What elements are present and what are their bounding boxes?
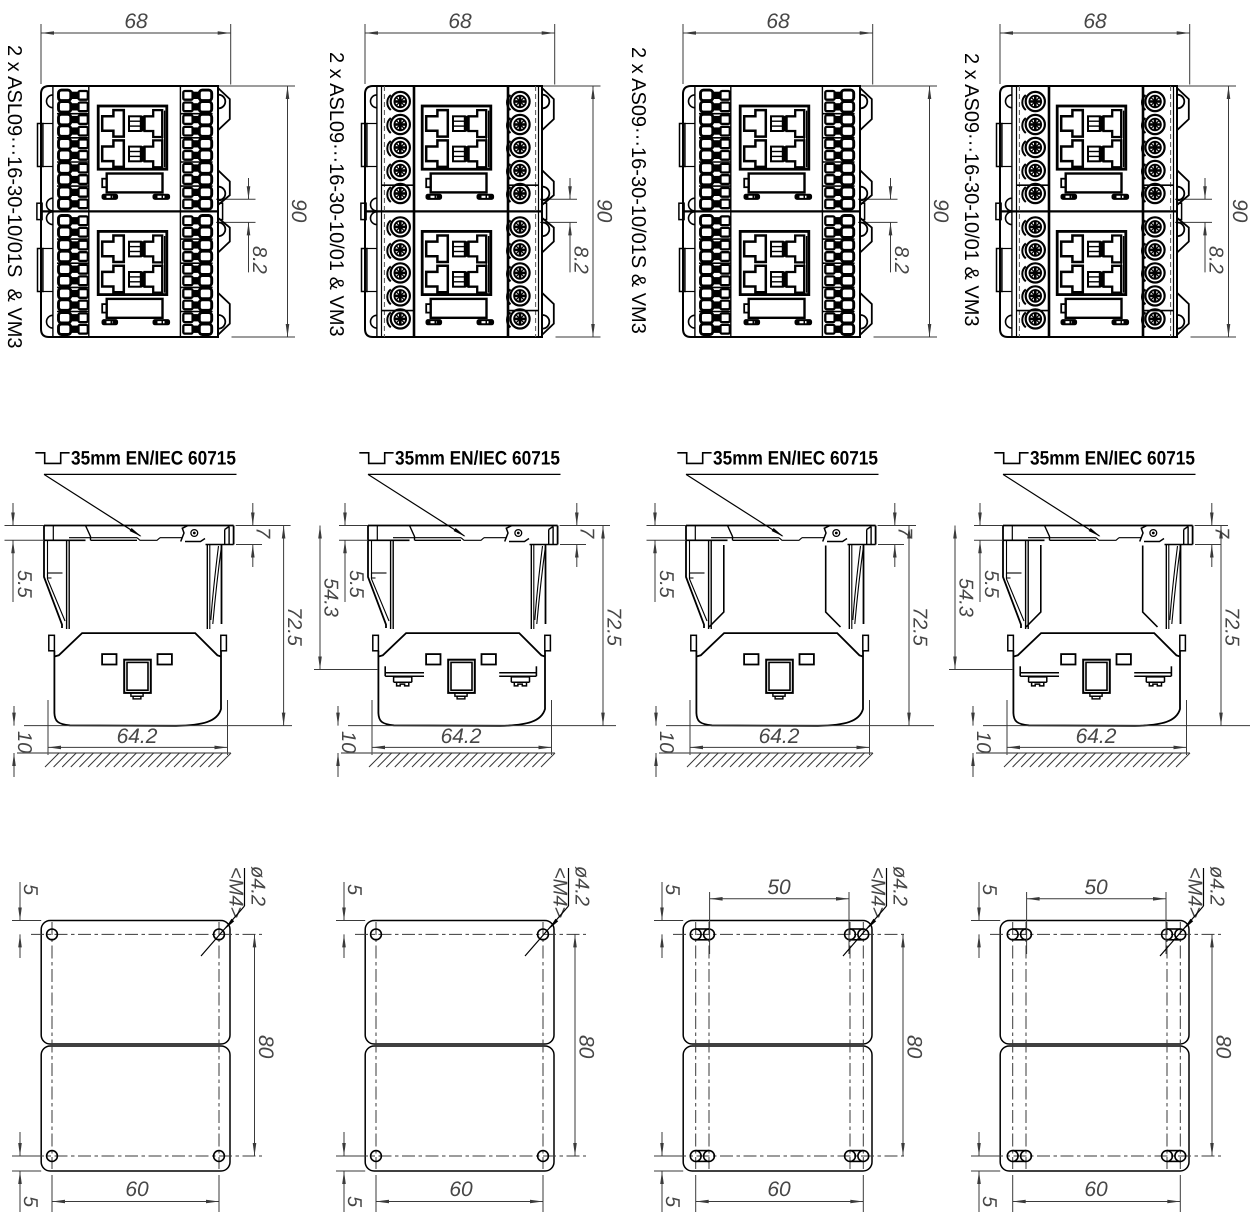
svg-text:50: 50 <box>1084 876 1108 899</box>
svg-text:2 x AS09···16-30-10/01 & VM3: 2 x AS09···16-30-10/01 & VM3 <box>960 53 982 326</box>
svg-text:ø4.2: ø4.2 <box>1206 866 1228 906</box>
svg-text:80: 80 <box>575 1035 598 1059</box>
svg-text:2 x AS09···16-30-10/01S & VM3: 2 x AS09···16-30-10/01S & VM3 <box>627 47 649 334</box>
svg-text:60: 60 <box>125 1178 149 1201</box>
svg-text:90: 90 <box>593 199 616 223</box>
svg-text:54.3: 54.3 <box>955 578 977 617</box>
svg-text:<M4>: <M4> <box>225 867 247 918</box>
svg-text:8.2: 8.2 <box>890 246 912 274</box>
svg-text:5: 5 <box>19 884 41 896</box>
svg-text:54.3: 54.3 <box>320 578 342 617</box>
svg-text:10: 10 <box>972 731 994 753</box>
svg-text:<M4>: <M4> <box>1184 867 1206 918</box>
svg-text:64.2: 64.2 <box>1076 725 1117 748</box>
svg-text:5.5: 5.5 <box>13 570 35 599</box>
svg-text:60: 60 <box>767 1178 791 1201</box>
svg-text:5: 5 <box>661 884 683 896</box>
svg-text:35mm EN/IEC 60715: 35mm EN/IEC 60715 <box>395 448 560 470</box>
svg-text:60: 60 <box>449 1178 473 1201</box>
svg-text:10: 10 <box>655 731 677 753</box>
svg-text:2 x ASL09···16-30-10/01S & VM: 2 x ASL09···16-30-10/01S & VM3 <box>3 45 25 349</box>
svg-text:<M4>: <M4> <box>549 867 571 918</box>
svg-text:8.2: 8.2 <box>570 246 592 274</box>
svg-text:80: 80 <box>903 1035 926 1059</box>
svg-text:72.5: 72.5 <box>283 607 305 647</box>
svg-text:7: 7 <box>576 527 598 539</box>
svg-text:7: 7 <box>252 527 274 539</box>
svg-text:80: 80 <box>254 1035 277 1059</box>
svg-text:ø4.2: ø4.2 <box>889 866 911 906</box>
svg-text:ø4.2: ø4.2 <box>571 866 593 906</box>
svg-text:68: 68 <box>448 10 472 33</box>
svg-text:2 x ASL09···16-30-10/01 & VM3: 2 x ASL09···16-30-10/01 & VM3 <box>325 52 347 337</box>
svg-text:64.2: 64.2 <box>759 725 800 748</box>
svg-text:5.5: 5.5 <box>345 570 367 599</box>
svg-text:72.5: 72.5 <box>603 607 625 647</box>
svg-text:90: 90 <box>1228 199 1250 223</box>
svg-text:8.2: 8.2 <box>1205 246 1227 274</box>
svg-text:90: 90 <box>287 199 310 223</box>
svg-text:10: 10 <box>337 731 359 753</box>
svg-text:5.5: 5.5 <box>980 570 1002 599</box>
svg-text:80: 80 <box>1212 1035 1235 1059</box>
svg-text:5: 5 <box>661 1196 683 1208</box>
svg-text:50: 50 <box>767 876 791 899</box>
svg-text:68: 68 <box>766 10 790 33</box>
svg-text:ø4.2: ø4.2 <box>247 866 269 906</box>
svg-text:68: 68 <box>1083 10 1107 33</box>
svg-text:8.2: 8.2 <box>248 246 270 274</box>
svg-text:<M4>: <M4> <box>867 867 889 918</box>
svg-text:68: 68 <box>124 10 148 33</box>
svg-text:60: 60 <box>1084 1178 1108 1201</box>
svg-text:72.5: 72.5 <box>909 607 931 647</box>
svg-text:5: 5 <box>343 884 365 896</box>
svg-text:10: 10 <box>13 731 35 753</box>
svg-text:5: 5 <box>978 884 1000 896</box>
svg-text:7: 7 <box>894 527 916 539</box>
svg-text:90: 90 <box>929 199 952 223</box>
svg-text:5: 5 <box>19 1196 41 1208</box>
svg-text:5: 5 <box>343 1196 365 1208</box>
svg-text:35mm EN/IEC 60715: 35mm EN/IEC 60715 <box>713 448 878 470</box>
svg-text:5.5: 5.5 <box>655 570 677 599</box>
svg-text:5: 5 <box>978 1196 1000 1208</box>
svg-text:35mm EN/IEC 60715: 35mm EN/IEC 60715 <box>1030 448 1195 470</box>
svg-text:64.2: 64.2 <box>441 725 482 748</box>
svg-text:72.5: 72.5 <box>1221 607 1243 647</box>
svg-text:64.2: 64.2 <box>117 725 158 748</box>
svg-text:35mm EN/IEC 60715: 35mm EN/IEC 60715 <box>71 448 236 470</box>
